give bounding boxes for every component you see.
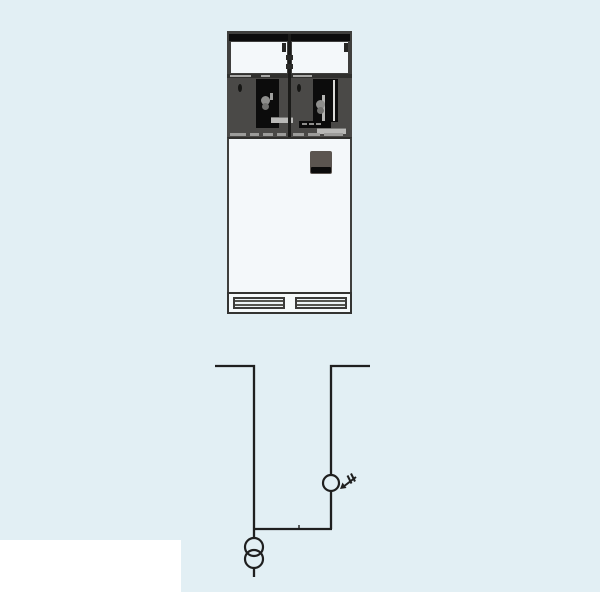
- hinge-mark: [230, 75, 251, 77]
- divider-latch: [286, 64, 293, 69]
- vent-grille-right: [295, 297, 347, 309]
- operating-shaft-collar-left: [262, 103, 269, 110]
- nameplate-text-mark: [309, 123, 314, 125]
- window-latch-left: [282, 43, 286, 52]
- frame-vent-mark: [263, 133, 273, 136]
- voltage-indicator-circle: [323, 475, 339, 491]
- inspection-window-left: [231, 42, 287, 73]
- indicator-plate: [310, 151, 332, 174]
- divider-latch: [286, 55, 293, 60]
- keyhole-left: [238, 84, 242, 92]
- vent-grille-left: [233, 297, 285, 309]
- frame-vent-mark: [324, 133, 343, 136]
- grille-slat: [235, 304, 283, 306]
- grille-slat: [235, 300, 283, 302]
- frame-vent-mark: [277, 133, 286, 136]
- indicator-plate-slot: [311, 167, 331, 173]
- right-feeder-line: [331, 366, 370, 529]
- frame-vent-mark: [293, 133, 304, 136]
- operating-shaft-collar-right: [317, 107, 324, 114]
- grille-slat: [297, 304, 345, 306]
- cable-plug-arrow-icon: [340, 474, 356, 490]
- single-line-diagram: [180, 350, 420, 595]
- nameplate-text-mark: [316, 123, 321, 125]
- nameplate-text-mark: [302, 123, 307, 125]
- inspection-window-right: [292, 42, 348, 73]
- nameplate-strip: [299, 121, 331, 128]
- window-edge-highlight-right: [333, 80, 335, 121]
- hinge-mark: [261, 75, 270, 77]
- frame-vent-mark: [308, 133, 320, 136]
- transformer-winding-secondary: [245, 550, 263, 568]
- switchgear-cabinet-photo: [227, 31, 352, 314]
- frame-vent-mark: [250, 133, 259, 136]
- center-divider: [288, 34, 291, 137]
- grille-slat: [297, 300, 345, 302]
- keyhole-right: [297, 84, 301, 92]
- window-latch-right: [344, 43, 348, 52]
- hinge-mark: [293, 75, 312, 77]
- cabinet-base: [227, 292, 352, 314]
- left-feeder-line: [215, 366, 254, 538]
- cabinet-front-door: [227, 137, 352, 292]
- transformer-icon: [245, 538, 263, 568]
- frame-vent-mark: [230, 133, 246, 136]
- shaft-detail-left: [270, 93, 273, 100]
